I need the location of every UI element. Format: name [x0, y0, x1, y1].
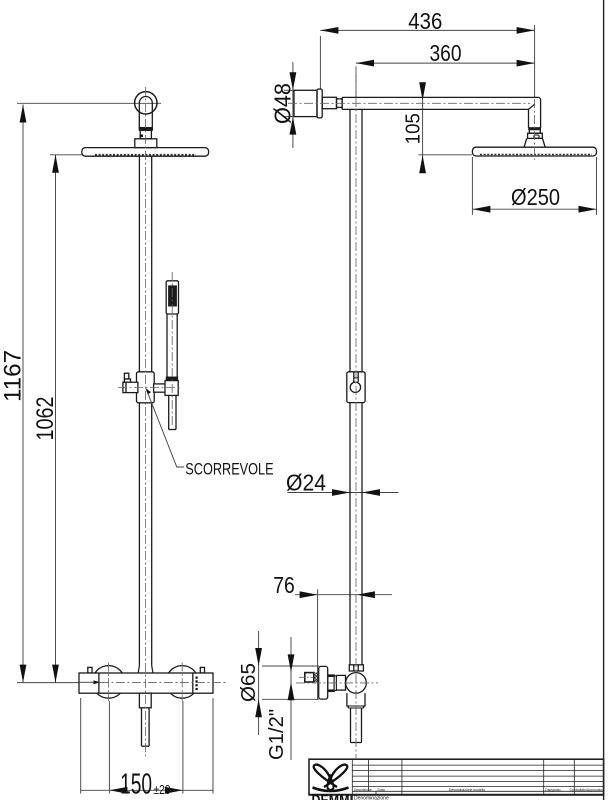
svg-text:1062: 1062	[32, 397, 59, 441]
svg-text:Ø65: Ø65	[238, 663, 260, 702]
svg-text:105: 105	[402, 113, 424, 144]
svg-text:360: 360	[430, 40, 462, 66]
svg-text:Ø250: Ø250	[511, 184, 560, 210]
svg-text:Data: Data	[378, 788, 385, 792]
svg-text:Descrizione: Descrizione	[354, 788, 372, 792]
svg-text:Controllato/Approvato: Controllato/Approvato	[570, 788, 603, 792]
svg-text:Ø24: Ø24	[286, 470, 326, 496]
svg-text:Disegnato: Disegnato	[545, 788, 560, 792]
svg-text:Denominazione modello: Denominazione modello	[449, 788, 485, 792]
svg-text:76: 76	[273, 572, 295, 598]
svg-text:G1/2": G1/2"	[266, 709, 288, 760]
svg-text:150: 150	[120, 768, 152, 800]
svg-text:±20: ±20	[154, 782, 171, 797]
svg-text:Ø48: Ø48	[270, 83, 296, 124]
svg-text:SCORREVOLE: SCORREVOLE	[185, 459, 273, 478]
svg-text:436: 436	[408, 8, 442, 34]
svg-text:Denominazione: Denominazione	[354, 796, 389, 800]
svg-text:1167: 1167	[0, 350, 27, 402]
svg-text:DEMM: DEMM	[312, 793, 350, 800]
